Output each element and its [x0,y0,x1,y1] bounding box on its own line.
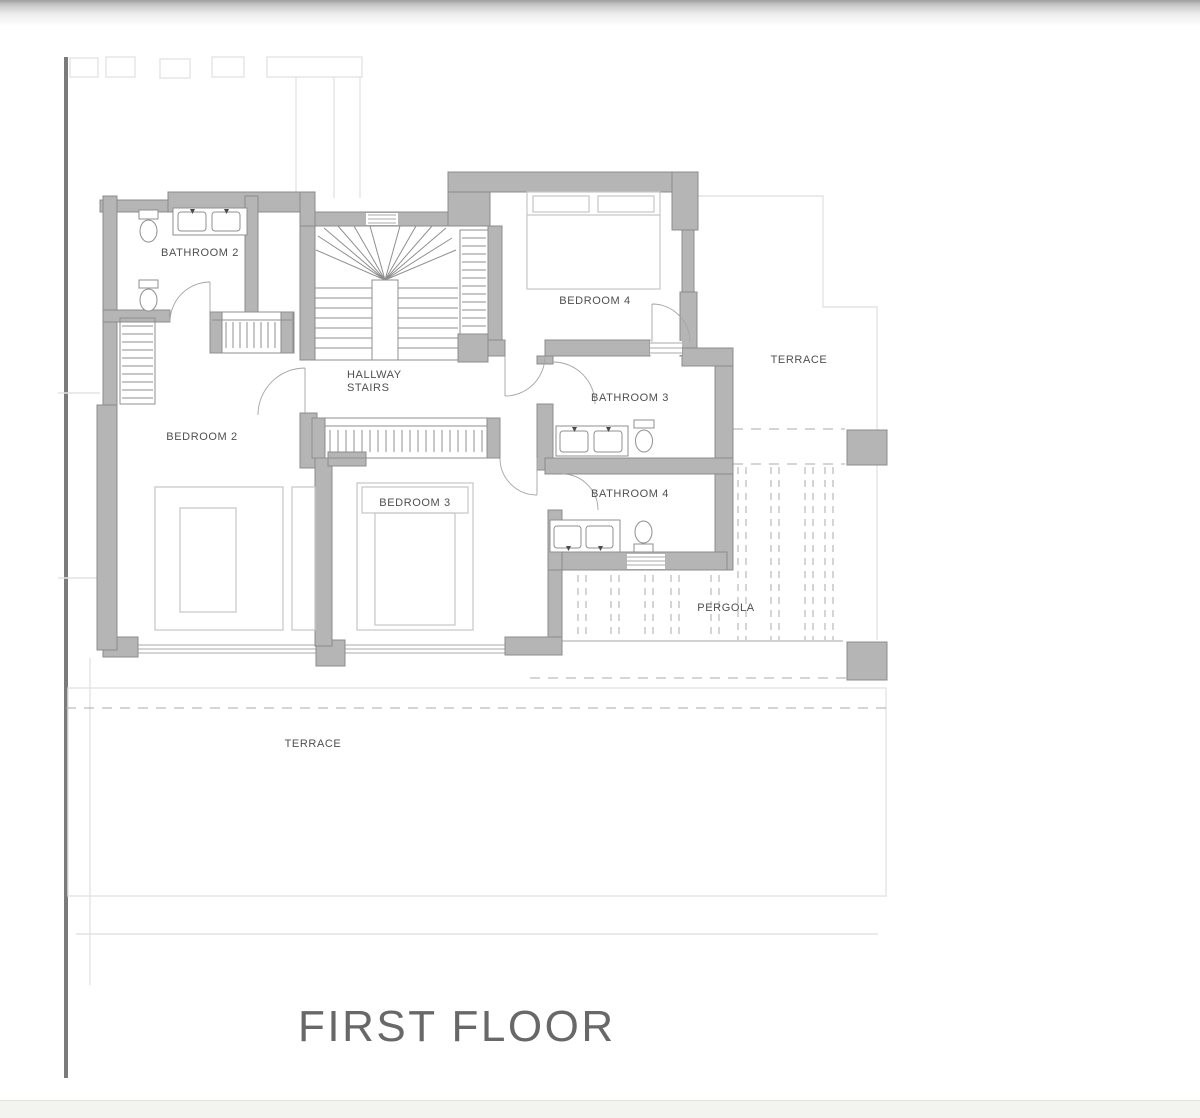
stair-void [372,280,398,360]
toilet-bathroom-3 [634,420,654,452]
room-label-hallway: HALLWAY [347,369,402,381]
room-label-bathroom-4: BATHROOM 4 [591,488,669,500]
floor-plan-page: BATHROOM 2 HALLWAY STAIRS BEDROOM 2 BEDR… [0,0,1200,1118]
bench-bedroom-2 [292,487,315,630]
floor-plan-drawing: BATHROOM 2 HALLWAY STAIRS BEDROOM 2 BEDR… [0,0,1200,1118]
room-label-bedroom-4: BEDROOM 4 [559,295,630,307]
vanity-bathroom-4 [550,520,620,552]
stairs-drawing [315,226,458,360]
toilet-bathroom-4 [634,521,653,552]
vanity-bathroom-2 [173,208,247,235]
room-label-terrace-lower: TERRACE [285,738,342,750]
bed-bedroom-4 [527,192,660,289]
pergola-post-bottom [847,642,887,680]
wardrobe-bedroom-2 [120,318,155,404]
room-label-stairs: STAIRS [347,382,390,394]
room-label-bathroom-2: BATHROOM 2 [161,247,239,259]
room-label-pergola: PERGOLA [697,602,754,614]
bed-bedroom-2 [155,487,283,630]
pergola-post-top [847,430,887,465]
toilet-bathroom-2 [139,210,158,242]
room-label-terrace-upper: TERRACE [771,354,828,366]
room-label-bathroom-3: BATHROOM 3 [591,392,669,404]
page-title: FIRST FLOOR [298,1002,718,1052]
bottom-bar [0,1100,1200,1118]
bidet-bathroom-2 [139,280,158,311]
pergola-beams [66,429,888,708]
vanity-bathroom-3 [556,426,628,456]
room-label-bedroom-2: BEDROOM 2 [166,431,237,443]
room-label-bedroom-3: BEDROOM 3 [379,497,450,509]
